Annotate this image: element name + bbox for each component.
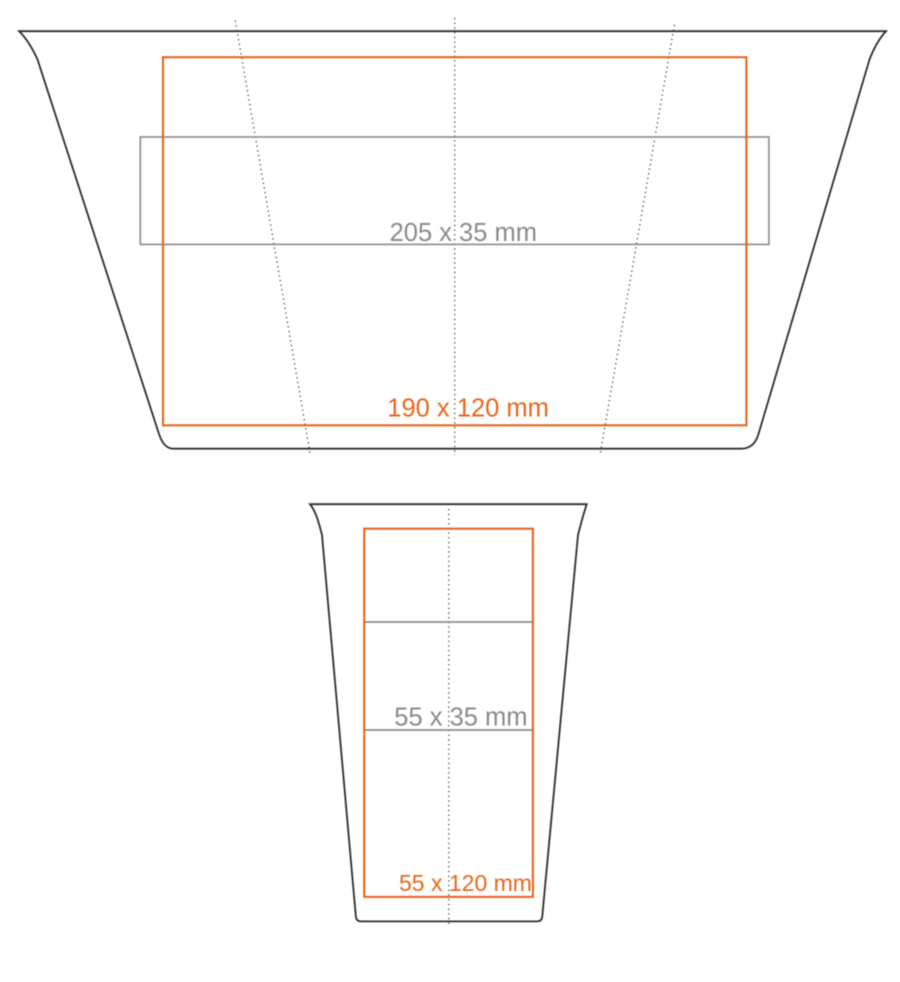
svg-text:190 x 120 mm: 190 x 120 mm	[387, 395, 549, 423]
svg-text:55 x 35 mm: 55 x 35 mm	[394, 704, 527, 732]
svg-text:55 x 120 mm: 55 x 120 mm	[399, 870, 532, 896]
svg-text:205 x 35 mm: 205 x 35 mm	[390, 219, 537, 247]
